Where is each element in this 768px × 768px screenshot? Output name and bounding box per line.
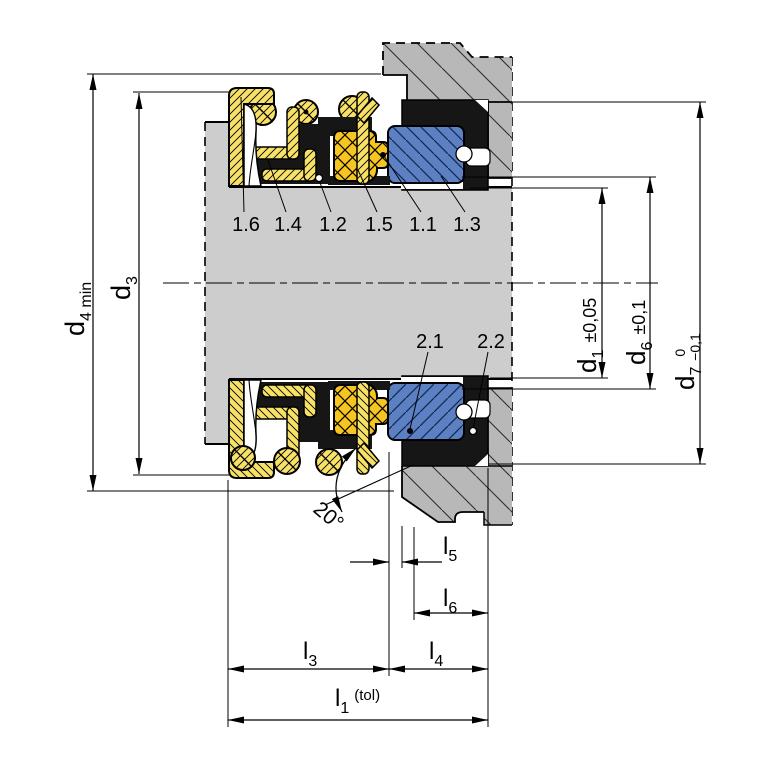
retainer-strip [304,149,316,181]
callout-label-2-2: 2.2 [477,331,505,353]
technical-drawing-canvas: 1.6 1.4 1.2 1.5 1.1 1.3 2.1 2.2 d4 min d… [0,0,768,768]
seat-notch [456,146,472,162]
seat-ring [388,126,464,183]
callout-label-1-5: 1.5 [365,214,393,236]
leader-dot-2-1 [407,428,413,434]
callout-label-1-2: 1.2 [319,214,347,236]
callout-label-2-1: 2.1 [416,331,444,353]
callout-label-1-1: 1.1 [409,214,437,236]
seal-drawing-svg: 1.6 1.4 1.2 1.5 1.1 1.3 2.1 2.2 d4 min d… [0,0,768,768]
leader-dot-1-2 [316,175,323,182]
callout-label-1-4: 1.4 [274,214,302,236]
spring-coil-center-dot [304,110,309,115]
retainer-strip [287,107,299,159]
callout-label-1-6: 1.6 [232,214,260,236]
callout-label-1-3: 1.3 [453,214,481,236]
leader-dot-1-1 [380,152,386,158]
leader-dot-2-2 [470,428,477,435]
